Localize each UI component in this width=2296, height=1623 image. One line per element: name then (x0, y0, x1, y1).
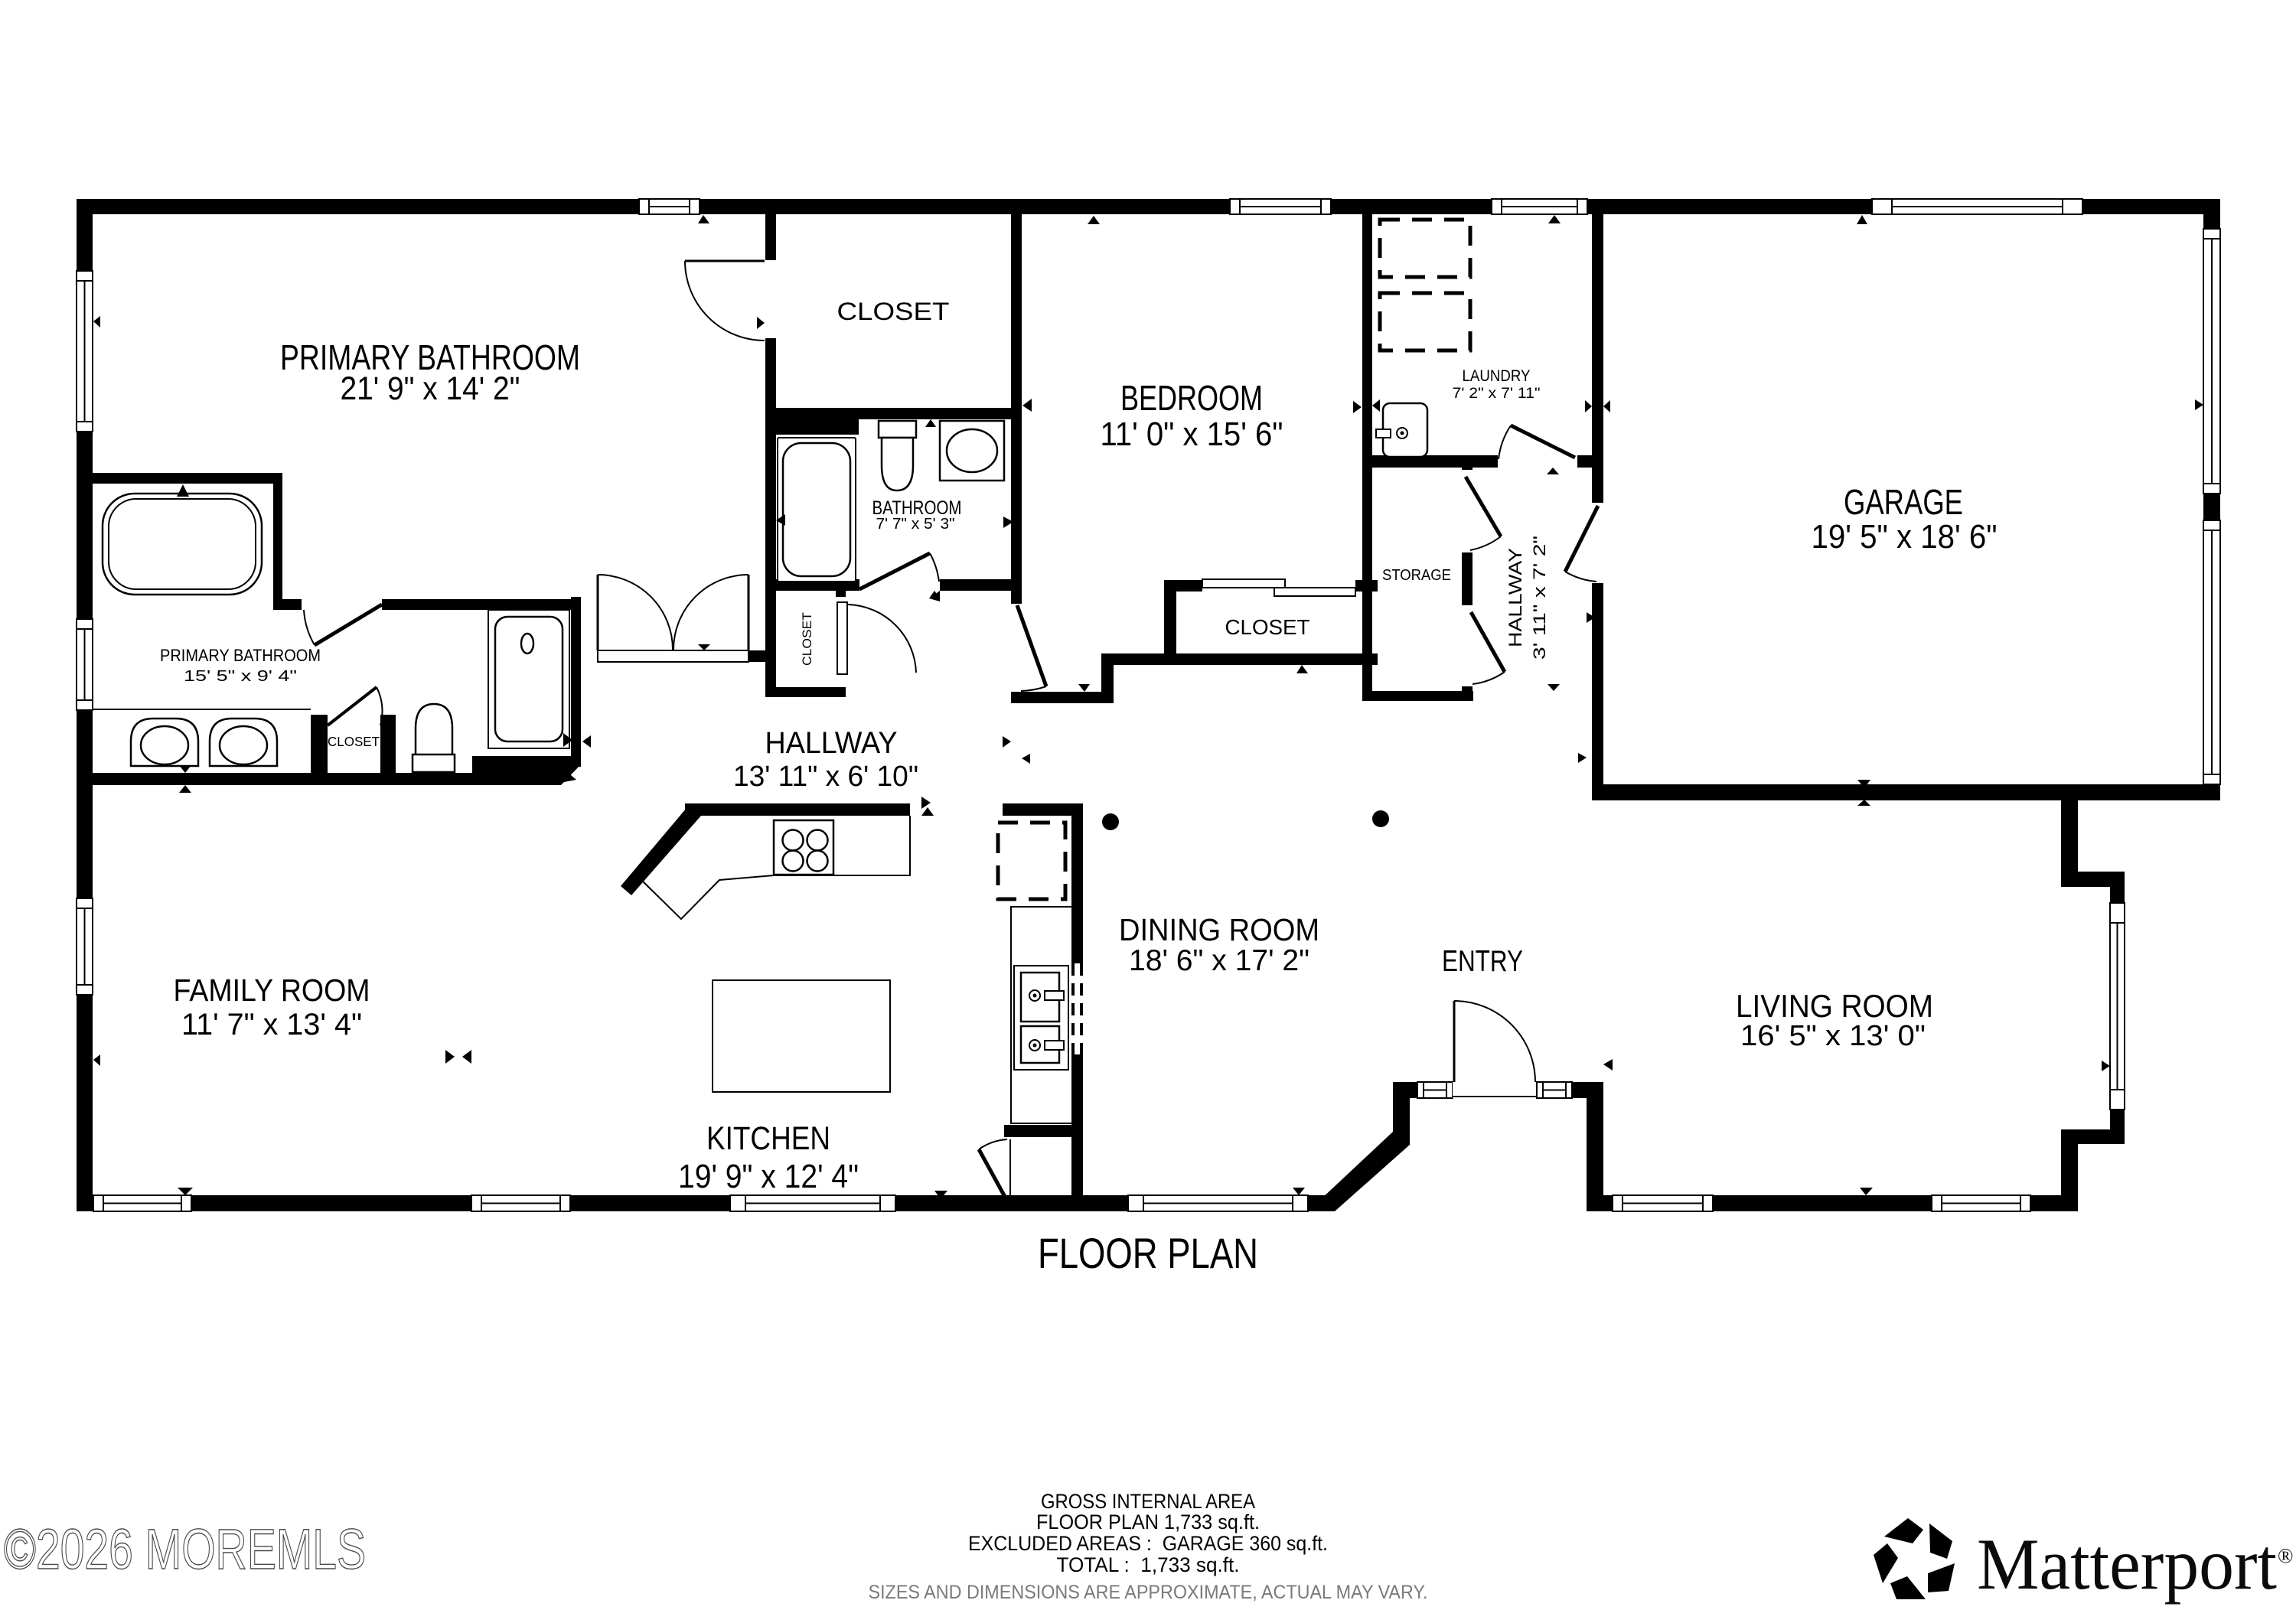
svg-text:3' 11" x 7' 2": 3' 11" x 7' 2" (1530, 536, 1549, 660)
svg-text:15' 5" x 9' 4": 15' 5" x 9' 4" (184, 668, 297, 685)
svg-text:EXCLUDED AREAS : GARAGE 360 s: EXCLUDED AREAS : GARAGE 360 sq.ft. (968, 1532, 1328, 1555)
svg-text:DINING ROOM: DINING ROOM (1119, 912, 1319, 947)
svg-text:PRIMARY BATHROOM: PRIMARY BATHROOM (160, 646, 321, 665)
svg-text:7' 2" x 7' 11": 7' 2" x 7' 11" (1453, 386, 1541, 402)
svg-text:KITCHEN: KITCHEN (706, 1120, 830, 1157)
svg-text:19' 9" x 12' 4": 19' 9" x 12' 4" (678, 1158, 859, 1195)
svg-text:CLOSET: CLOSET (1225, 615, 1310, 639)
svg-text:19' 5" x 18' 6": 19' 5" x 18' 6" (1812, 518, 1998, 556)
svg-text:FLOOR PLAN: FLOOR PLAN (1038, 1229, 1258, 1277)
svg-text:FAMILY ROOM: FAMILY ROOM (174, 973, 370, 1008)
svg-text:HALLWAY: HALLWAY (1505, 548, 1526, 647)
svg-text:HALLWAY: HALLWAY (765, 726, 898, 760)
svg-text:13' 11" x 6' 10": 13' 11" x 6' 10" (733, 761, 918, 793)
svg-text:ENTRY: ENTRY (1442, 945, 1523, 978)
svg-text:7' 7" x 5' 3": 7' 7" x 5' 3" (876, 516, 955, 533)
svg-text:18' 6" x 17' 2": 18' 6" x 17' 2" (1129, 944, 1309, 977)
svg-text:21' 9" x 14' 2": 21' 9" x 14' 2" (341, 370, 520, 407)
svg-text:GARAGE: GARAGE (1844, 482, 1963, 522)
svg-text:SIZES AND DIMENSIONS ARE APPRO: SIZES AND DIMENSIONS ARE APPROXIMATE, AC… (869, 1582, 1428, 1603)
svg-text:®: ® (2278, 1544, 2294, 1567)
svg-text:LAUNDRY: LAUNDRY (1463, 367, 1531, 385)
svg-text:BEDROOM: BEDROOM (1120, 378, 1263, 418)
svg-text:11' 7" x 13' 4": 11' 7" x 13' 4" (181, 1008, 362, 1041)
svg-text:STORAGE: STORAGE (1382, 567, 1451, 584)
svg-text:CLOSET: CLOSET (837, 298, 950, 325)
svg-text:11' 0" x 15' 6": 11' 0" x 15' 6" (1101, 416, 1283, 453)
svg-text:GROSS INTERNAL AREA: GROSS INTERNAL AREA (1041, 1490, 1255, 1513)
svg-text:TOTAL : 1,733 sq.ft.: TOTAL : 1,733 sq.ft. (1057, 1553, 1240, 1576)
svg-text:©2026 MOREMLS: ©2026 MOREMLS (4, 1517, 366, 1581)
svg-text:16' 5" x 13' 0": 16' 5" x 13' 0" (1740, 1020, 1926, 1052)
svg-text:FLOOR PLAN 1,733 sq.ft.: FLOOR PLAN 1,733 sq.ft. (1036, 1511, 1260, 1533)
svg-text:CLOSET: CLOSET (800, 612, 814, 666)
svg-text:LIVING ROOM: LIVING ROOM (1736, 988, 1933, 1024)
svg-text:Matterport: Matterport (1977, 1524, 2277, 1605)
svg-text:CLOSET: CLOSET (328, 734, 380, 749)
